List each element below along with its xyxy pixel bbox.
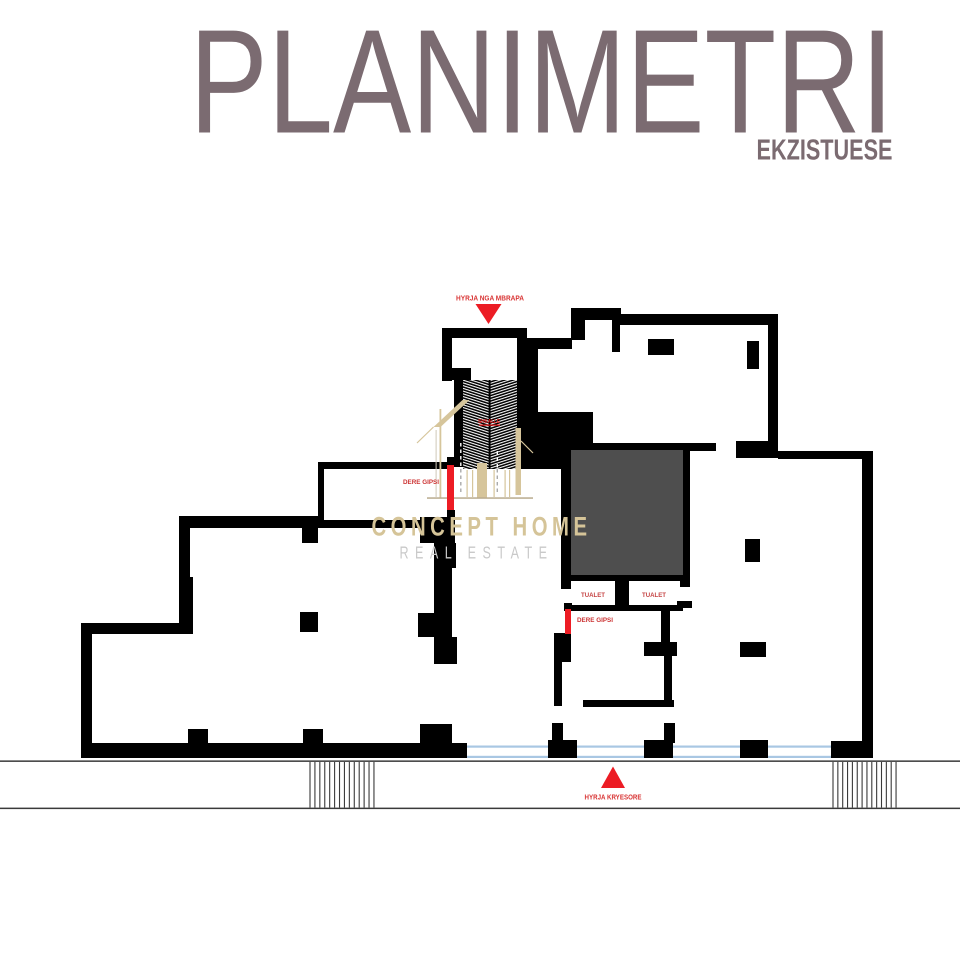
svg-text:TUALET: TUALET [581,592,605,599]
svg-text:HYRJA NGA MBRAPA: HYRJA NGA MBRAPA [456,296,524,303]
svg-text:TUALET: TUALET [642,592,666,599]
svg-text:DERE GIPSI: DERE GIPSI [577,617,613,624]
svg-text:CONCEPT HOME: CONCEPT HOME [372,512,592,542]
svg-text:DERE GIPSI: DERE GIPSI [403,479,439,486]
svg-text:EKZISTUESE: EKZISTUESE [757,135,893,167]
svg-text:SHKALLE: SHKALLE [478,419,500,425]
svg-text:REAL ESTATE: REAL ESTATE [400,543,554,563]
svg-text:HYRJA KRYESORE: HYRJA KRYESORE [585,795,642,802]
